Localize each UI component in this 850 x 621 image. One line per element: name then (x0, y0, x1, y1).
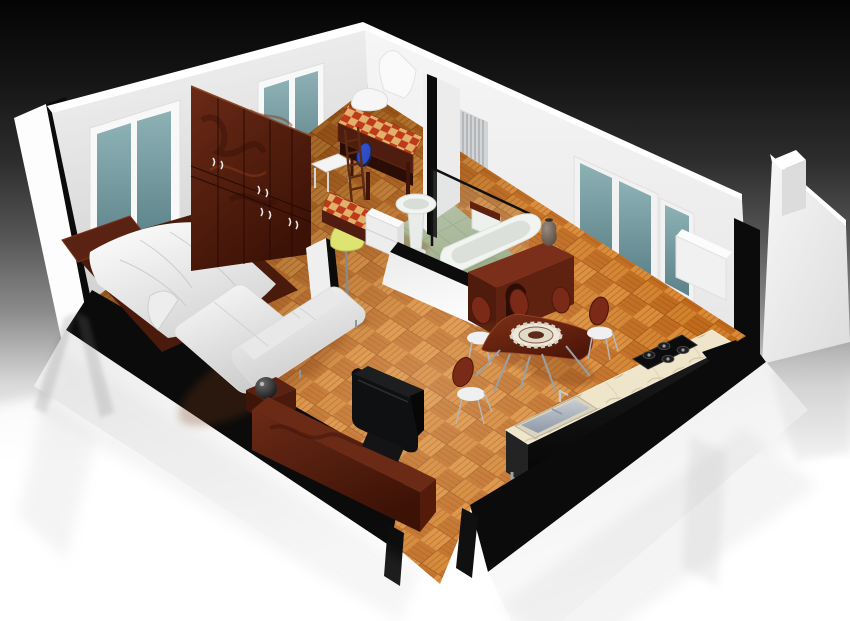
sphere-ornament (255, 377, 277, 399)
chair-seat (587, 327, 613, 340)
doily-centerpiece (511, 323, 561, 347)
apartment-render (0, 0, 850, 621)
chair-seat (457, 387, 485, 401)
sink-bowl (403, 199, 429, 210)
sphere-highlight (260, 382, 264, 386)
vase-body (541, 220, 557, 246)
pillow (351, 88, 387, 110)
doily-center (528, 331, 544, 339)
scene-canvas (0, 0, 850, 621)
sink-pedestal (408, 210, 424, 252)
vase-mouth (545, 218, 553, 222)
